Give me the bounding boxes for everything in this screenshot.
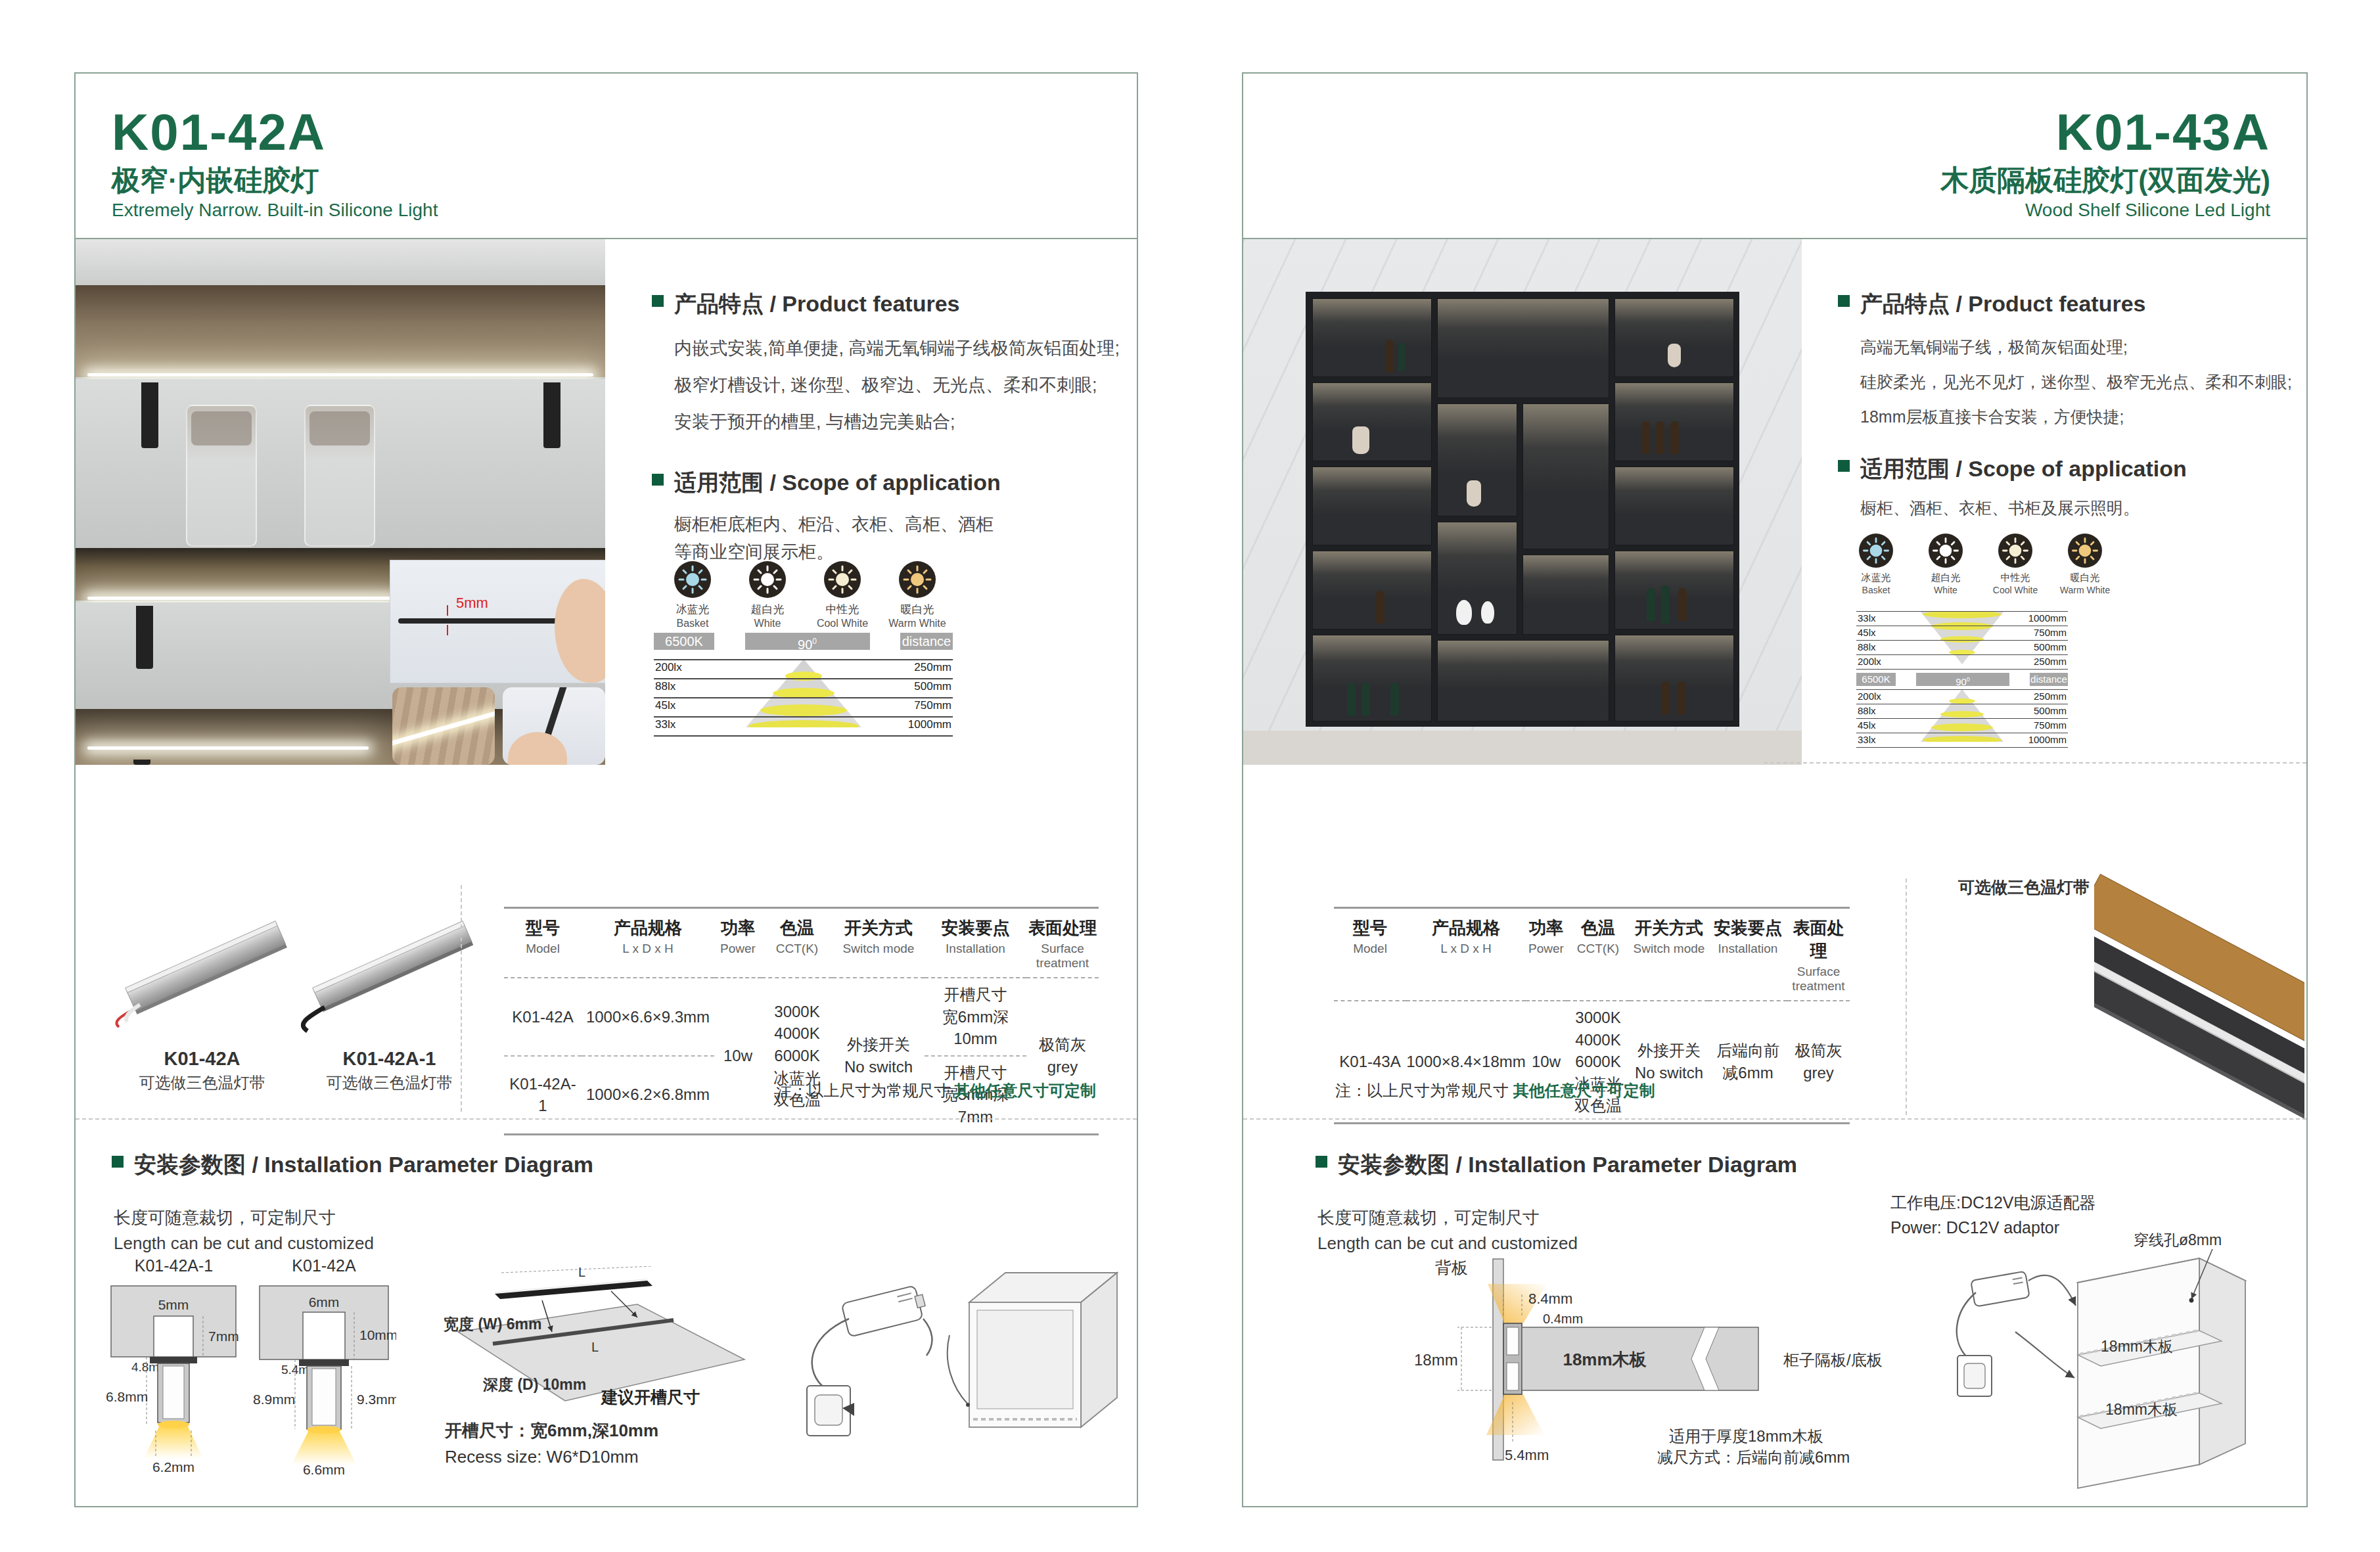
svg-text:18mm: 18mm: [1414, 1351, 1458, 1369]
distance-value: 750mm: [914, 699, 951, 716]
distance-value: 750mm: [2034, 719, 2067, 733]
lux-value: 33lx: [1858, 734, 1876, 747]
lux-value: 88lx: [655, 680, 675, 697]
cabinet-cell: [1312, 551, 1432, 629]
section-divider: [76, 1118, 1137, 1120]
groove-diagram: L L 宽度 (W) 6mm 深度 (D) 10mm 建议开槽尺寸: [444, 1266, 756, 1410]
features-section: 产品特点 / Product features 高端无氧铜端子线，极简灰铝面处理…: [1838, 289, 2298, 532]
photometry-row: 45lx 750mm: [1856, 626, 2068, 640]
features-heading: 产品特点 / Product features: [1838, 289, 2298, 319]
hand-photo: [555, 579, 605, 683]
distance-value: 500mm: [914, 680, 951, 697]
inset-photo-strip-thickness: 5mm: [390, 560, 605, 683]
distance-chip: distance: [2030, 673, 2068, 686]
svg-text:5mm: 5mm: [158, 1297, 189, 1312]
photometry-row: 200lx 250mm: [654, 659, 953, 678]
photometry-row: 200lx 250mm: [1856, 654, 2068, 670]
photometry-row: 45lx 750mm: [1856, 718, 2068, 733]
svg-text:L: L: [591, 1340, 599, 1354]
col-header-cct: 色温CCT(K): [762, 909, 833, 978]
inset-photo-groove-light: [392, 687, 495, 765]
photometry-rows-up: 33lx 1000mm 45lx 750mm 88lx 500mm 200lx …: [1856, 611, 2068, 670]
cross-section-drawing: 背板 18mm木板 柜子隔板/底板 8.4mm 0.4mm 18mm 5.4mm…: [1394, 1250, 1887, 1473]
shelf-cross-section-diagram: 背板 18mm木板 柜子隔板/底板 8.4mm 0.4mm 18mm 5.4mm…: [1394, 1250, 1887, 1476]
col-header-power: 功率Power: [714, 909, 762, 978]
lux-value: 200lx: [1858, 691, 1881, 704]
model-title: K01-42A: [112, 106, 438, 158]
cut-note: 长度可随意裁切，可定制尺寸 Length can be cut and cust…: [1317, 1205, 1578, 1256]
cell-model: K01-42A: [504, 978, 582, 1057]
cut-note-cn: 长度可随意裁切，可定制尺寸: [1317, 1205, 1578, 1231]
photometry-row: 33lx 1000mm: [1856, 733, 2068, 747]
feature-line: 硅胶柔光，见光不见灯，迷你型、极窄无光点、柔和不刺眼;: [1860, 371, 2298, 393]
cell-install: 开槽尺寸宽6mm深10mm: [925, 978, 1026, 1057]
svg-text:8.9mm: 8.9mm: [253, 1392, 295, 1407]
svg-text:6.2mm: 6.2mm: [152, 1459, 195, 1474]
svg-text:6mm: 6mm: [309, 1294, 340, 1310]
col-header-install: 安装要点Installation: [1708, 909, 1787, 1001]
feature-line: 极窄灯槽设计, 迷你型、极窄边、无光点、柔和不刺眼;: [674, 373, 1132, 397]
product-sub-label: 可选做三色温灯带: [299, 1072, 480, 1093]
cabinet-drawing: 18mm木板 18mm木板 穿线孔ø8mm: [1936, 1220, 2295, 1506]
col-header-surface: 表面处理Surface treatment: [1787, 909, 1850, 1001]
col-header-model: 型号Model: [1334, 909, 1406, 1001]
inset-photo-hand-strip: [503, 687, 605, 765]
lux-value: 45lx: [655, 699, 675, 716]
photometry-table-double: 33lx 1000mm 45lx 750mm 88lx 500mm 200lx …: [1856, 611, 2068, 748]
power-note-cn: 工作电压:DC12V电源适配器: [1890, 1191, 2096, 1216]
svg-text:减尺方式：后端向前减6mm: 减尺方式：后端向前减6mm: [1657, 1448, 1850, 1466]
model-title: K01-43A: [1940, 106, 2270, 158]
features-section: 产品特点 / Product features 内嵌式安装,简单便捷, 高端无氧…: [652, 289, 1132, 577]
svg-text:5.4mm: 5.4mm: [1505, 1447, 1549, 1463]
scope-list: 橱柜、酒柜、衣柜、书柜及展示照明。: [1860, 497, 2298, 519]
cross-section-diagram-1: K01-42A-1 5mm 7mm 4.8mm 6.8mm 6.2mm: [103, 1256, 244, 1478]
clear-container: [186, 405, 257, 547]
cct-option-warm-white: 暖白光 Warm White: [887, 561, 948, 629]
product-sub-label: 可选做三色温灯带: [1938, 877, 2109, 898]
svg-text:0.4mm: 0.4mm: [1543, 1312, 1583, 1326]
col-header-surface: 表面处理Surface treatment: [1026, 909, 1099, 978]
product-title-en: Extremely Narrow. Built-in Silicone Ligh…: [112, 200, 438, 221]
cut-note: 长度可随意裁切，可定制尺寸 Length can be cut and cust…: [114, 1205, 374, 1256]
section-divider: [1243, 1118, 2306, 1120]
svg-text:6.6mm: 6.6mm: [303, 1462, 345, 1475]
product-title-cn: 木质隔板硅胶灯(双面发光): [1940, 164, 2270, 196]
sun-icon: [2068, 534, 2102, 568]
vertical-divider: [1906, 879, 1907, 1115]
photometry-row: 45lx 750mm: [654, 697, 953, 716]
svg-text:7mm: 7mm: [208, 1329, 239, 1344]
cell-cct: 3000K4000K6000K 冰蓝光双色温: [1567, 1001, 1630, 1122]
photometry-row: 88lx 500mm: [1856, 640, 2068, 654]
distance-value: 250mm: [2034, 691, 2067, 704]
adapter-drawing: [789, 1273, 936, 1447]
features-list: 内嵌式安装,简单便捷, 高端无氧铜端子线极简灰铝面处理; 极窄灯槽设计, 迷你型…: [674, 336, 1132, 434]
features-heading-text: 产品特点 / Product features: [1860, 289, 2146, 319]
sun-icon: [899, 561, 936, 598]
svg-text:18mm木板: 18mm木板: [2101, 1338, 2173, 1355]
svg-text:背板: 背板: [1435, 1258, 1468, 1277]
product-image-block: K01-42A 可选做三色温灯带: [112, 892, 292, 1093]
scope-line: 橱柜、酒柜、衣柜、书柜及展示照明。: [1860, 497, 2298, 519]
cct-chip: 6500K: [1856, 673, 1896, 686]
square-bullet-icon: [1838, 460, 1850, 472]
clear-container: [304, 405, 375, 547]
col-header-cct: 色温CCT(K): [1567, 909, 1630, 1001]
cabinet-cell: [1437, 640, 1609, 721]
install-heading: 安装参数图 / Installation Parameter Diagram: [1316, 1150, 1797, 1180]
photo-ceiling: [76, 239, 605, 285]
square-bullet-icon: [652, 295, 664, 307]
square-bullet-icon: [1838, 295, 1850, 307]
cct-option-white: 超白光 White: [1917, 534, 1974, 595]
cut-note-en: Length can be cut and customized: [114, 1231, 374, 1256]
dimension-tick: [447, 625, 448, 635]
cell-switch: 外接开关No switch: [833, 978, 925, 1133]
shelf-bracket: [543, 382, 561, 448]
col-header-size: 产品规格L x D x H: [582, 909, 714, 978]
cell-size: 1000×8.4×18mm: [1406, 1001, 1526, 1122]
scope-heading-text: 适用范围 / Scope of application: [1860, 454, 2187, 484]
cabinet-cell: [1312, 298, 1432, 377]
led-strip: [87, 746, 369, 750]
cabinet-cell: [1437, 298, 1609, 398]
cct-label-en: Warm White: [887, 618, 948, 629]
cell-surface: 极简灰grey: [1787, 1001, 1850, 1122]
diagram-label: K01-42A: [252, 1256, 396, 1275]
sun-icon: [1859, 534, 1893, 568]
feature-line: 18mm层板直接卡合安装，方便快捷;: [1860, 406, 2298, 428]
cell-model: K01-43A: [1334, 1001, 1406, 1122]
note-prefix: 注：以上尺寸为常规尺寸: [776, 1082, 954, 1099]
cct-option-ice-blue: 冰蓝光 Basket: [662, 561, 723, 629]
product-title-en: Wood Shelf Silicone Led Light: [1940, 200, 2270, 221]
col-header-size: 产品规格L x D x H: [1406, 909, 1526, 1001]
cct-option-warm-white: 暖白光 Warm White: [2057, 534, 2113, 595]
cell-cct: 3000K4000K6000K 冰蓝光双色温: [762, 978, 833, 1133]
photometry-rows-down: 200lx 250mm 88lx 500mm 45lx 750mm 33lx 1…: [1856, 689, 2068, 748]
product-photo-shelf-lighting: 5mm: [76, 239, 605, 765]
cct-label-cn: 中性光: [1987, 572, 2044, 584]
product-title-cn: 极窄·内嵌硅胶灯: [112, 164, 438, 196]
cct-label-cn: 冰蓝光: [1848, 572, 1904, 584]
vertical-divider: [461, 885, 462, 1112]
features-list: 高端无氧铜端子线，极简灰铝面处理; 硅胶柔光，见光不见灯，迷你型、极窄无光点、柔…: [1860, 336, 2298, 428]
silicone-strip: [398, 618, 557, 624]
col-header-model: 型号Model: [504, 909, 582, 978]
distance-value: 250mm: [2034, 656, 2067, 669]
col-header-install: 安装要点Installation: [925, 909, 1026, 978]
cct-label-cn: 暖白光: [2057, 572, 2113, 584]
shelf-bracket: [141, 382, 158, 448]
cct-options-row: 冰蓝光 Basket 超白光 White 中性光: [1848, 534, 2113, 595]
table-note: 注：以上尺寸为常规尺寸 其他任意尺寸可定制: [1335, 1080, 1655, 1101]
product-photo-display-cabinet: [1243, 239, 1802, 765]
product-name: K01-42A: [112, 1048, 292, 1070]
beam-angle-chip: 900: [745, 633, 870, 650]
cell-size: 1000×6.2×6.8mm: [582, 1057, 714, 1133]
note-highlight: 其他任意尺寸可定制: [1513, 1082, 1655, 1099]
distance-value: 750mm: [2034, 627, 2067, 640]
cct-option-cool-white: 中性光 Cool White: [1987, 534, 2044, 595]
scope-heading: 适用范围 / Scope of application: [1838, 454, 2298, 484]
svg-text:L: L: [578, 1266, 585, 1279]
cabinet-install-diagram: 18mm木板 18mm木板 穿线孔ø8mm: [1936, 1220, 2295, 1509]
svg-text:9.3mm: 9.3mm: [357, 1392, 396, 1407]
feature-line: 安装于预开的槽里, 与槽边完美贴合;: [674, 410, 1132, 434]
cross-section-drawing: 6mm 10mm 5.4mm 8.9mm 9.3mm 6.6mm: [252, 1278, 396, 1475]
svg-text:穿线孔ø8mm: 穿线孔ø8mm: [2134, 1231, 2222, 1248]
cct-option-ice-blue: 冰蓝光 Basket: [1848, 534, 1904, 595]
svg-text:18mm木板: 18mm木板: [1563, 1350, 1647, 1369]
col-header-switch: 开关方式Switch mode: [833, 909, 925, 978]
sun-icon: [674, 561, 711, 598]
svg-text:18mm木板: 18mm木板: [2105, 1401, 2178, 1418]
lux-value: 88lx: [1858, 705, 1876, 718]
beam-angle-chip: 900: [1916, 673, 2009, 686]
photo-bottom-divider: [1764, 762, 2306, 764]
cct-chip: 6500K: [654, 633, 714, 650]
svg-text:适用于厚度18mm木板: 适用于厚度18mm木板: [1669, 1427, 1823, 1445]
note-prefix: 注：以上尺寸为常规尺寸: [1335, 1082, 1513, 1099]
distance-value: 1000mm: [2028, 612, 2067, 626]
product-sub-label: 可选做三色温灯带: [112, 1072, 292, 1093]
lux-value: 45lx: [1858, 719, 1876, 733]
cabinet-cell: [1312, 635, 1432, 721]
cabinet-cell: [1437, 403, 1517, 516]
shelf-profile-image: [2094, 870, 2304, 1189]
install-heading: 安装参数图 / Installation Parameter Diagram: [112, 1150, 593, 1180]
product-image-block: [2094, 870, 2304, 1191]
led-strip: [87, 373, 593, 377]
cabinet-cell: [1614, 551, 1734, 629]
shelf-bracket: [133, 760, 150, 765]
scope-line: 橱柜柜底柜内、柜沿、衣柜、高柜、酒柜: [674, 513, 1132, 536]
aluminum-profile-image: [301, 892, 478, 1043]
cct-label-en: Basket: [662, 618, 723, 629]
photometry-row: 33lx 1000mm: [654, 716, 953, 735]
svg-text:柜子隔板/底板: 柜子隔板/底板: [1783, 1351, 1883, 1369]
distance-value: 500mm: [2034, 705, 2067, 718]
svg-text:宽度 (W) 6mm: 宽度 (W) 6mm: [444, 1315, 542, 1333]
hand-photo: [508, 732, 567, 765]
feature-line: 高端无氧铜端子线，极简灰铝面处理;: [1860, 336, 2298, 358]
product-name: K01-42A-1: [299, 1048, 480, 1070]
lux-value: 33lx: [1858, 612, 1876, 626]
shelf-bracket: [136, 606, 153, 669]
photometry-row: 88lx 500mm: [654, 678, 953, 697]
scope-heading-text: 适用范围 / Scope of application: [674, 468, 1001, 498]
scope-list: 橱柜柜底柜内、柜沿、衣柜、高柜、酒柜 等商业空间展示柜。: [674, 513, 1132, 564]
photo-shelf-top: [76, 285, 605, 377]
photometry-header: 6500K 900 distance: [1856, 673, 2068, 686]
cabinet-cell: [1614, 298, 1734, 377]
cct-label-en: Cool White: [812, 618, 873, 629]
svg-text:6.8mm: 6.8mm: [106, 1389, 148, 1404]
sun-icon: [749, 561, 786, 598]
glowing-strip: [392, 708, 495, 748]
photometry-header: 6500K 900 distance: [654, 633, 953, 650]
cell-model: K01-42A-1: [504, 1057, 582, 1133]
cct-label-en: White: [737, 618, 798, 629]
distance-value: 250mm: [914, 661, 951, 678]
photometry-row: 88lx 500mm: [1856, 704, 2068, 718]
photometry-table: 6500K 900 distance 200lx 250mm: [654, 633, 953, 737]
dimension-tick: [447, 605, 448, 616]
cabinet-cell: [1614, 467, 1734, 545]
features-heading: 产品特点 / Product features: [652, 289, 1132, 319]
cabinet-cell: [1522, 403, 1609, 549]
cct-label-en: Warm White: [2057, 585, 2113, 595]
features-heading-text: 产品特点 / Product features: [674, 289, 960, 319]
cct-label-en: Basket: [1848, 585, 1904, 595]
lux-value: 200lx: [1858, 656, 1881, 669]
square-bullet-icon: [112, 1156, 124, 1168]
square-bullet-icon: [1316, 1156, 1327, 1168]
distance-value: 500mm: [2034, 641, 2067, 654]
recess-note-en: Recess size: W6*D10mm: [445, 1444, 658, 1470]
power-adapter-diagram: [789, 1273, 936, 1449]
col-header-switch: 开关方式Switch mode: [1630, 909, 1708, 1001]
lux-value: 88lx: [1858, 641, 1876, 654]
catalog-page-left: K01-42A 极窄·内嵌硅胶灯 Extremely Narrow. Built…: [74, 72, 1138, 1507]
strip-thickness-dim: 5mm: [456, 595, 488, 612]
cell-install: 后端向前减6mm: [1708, 1001, 1787, 1122]
cell-power: 10w: [1526, 1001, 1567, 1122]
cross-section-diagram-2: K01-42A 6mm 10mm 5.4mm 8.9mm 9.3mm 6.6mm: [252, 1256, 396, 1478]
cct-option-white: 超白光 White: [737, 561, 798, 629]
distance-chip: distance: [900, 633, 953, 650]
install-heading-text: 安装参数图 / Installation Parameter Diagram: [1338, 1150, 1797, 1180]
cabinet-cell: [1312, 382, 1432, 461]
lux-value: 200lx: [655, 661, 682, 678]
photometry-row: 200lx 250mm: [1856, 689, 2068, 704]
cct-label-cn: 暖白光: [887, 602, 948, 617]
distance-value: 1000mm: [908, 718, 951, 735]
lux-value: 45lx: [1858, 627, 1876, 640]
col-header-power: 功率Power: [1526, 909, 1567, 1001]
cabinet-cell: [1614, 382, 1734, 461]
groove-drawing: L L 宽度 (W) 6mm 深度 (D) 10mm 建议开槽尺寸: [444, 1266, 756, 1407]
recess-note-cn: 开槽尺寸：宽6mm,深10mm: [445, 1417, 658, 1444]
photo-floor: [1243, 731, 1802, 765]
display-cabinet: [1306, 292, 1739, 727]
feature-line: 内嵌式安装,简单便捷, 高端无氧铜端子线极简灰铝面处理;: [674, 336, 1132, 360]
distance-value: 1000mm: [2028, 734, 2067, 747]
svg-text:8.4mm: 8.4mm: [1528, 1290, 1572, 1307]
cell-size: 1000×6.6×9.3mm: [582, 978, 714, 1057]
cct-label-en: White: [1917, 585, 1974, 595]
cell-surface: 极简灰grey: [1026, 978, 1099, 1133]
scope-heading: 适用范围 / Scope of application: [652, 468, 1132, 498]
cell-switch: 外接开关No switch: [1630, 1001, 1708, 1122]
sun-icon: [824, 561, 861, 598]
cct-options-row: 冰蓝光 Basket 超白光 White: [662, 561, 948, 629]
cabinet-drawing: [943, 1256, 1127, 1460]
svg-text:深度 (D) 10mm: 深度 (D) 10mm: [482, 1376, 586, 1393]
note-highlight: 其他任意尺寸可定制: [954, 1082, 1096, 1099]
recess-size-note: 开槽尺寸：宽6mm,深10mm Recess size: W6*D10mm: [445, 1417, 658, 1471]
cabinet-cell: [1312, 467, 1432, 545]
cct-label-cn: 超白光: [737, 602, 798, 617]
aluminum-profile-image: [114, 892, 291, 1043]
cabinet-cell: [1522, 555, 1609, 635]
install-heading-text: 安装参数图 / Installation Parameter Diagram: [134, 1150, 593, 1180]
cct-label-cn: 冰蓝光: [662, 602, 723, 617]
page-title-block: K01-42A 极窄·内嵌硅胶灯 Extremely Narrow. Built…: [112, 106, 438, 221]
cabinet-cell: [1614, 635, 1734, 721]
led-strip: [87, 597, 395, 600]
diagram-label: K01-42A-1: [103, 1256, 244, 1275]
cell-power: 10w: [714, 978, 762, 1133]
cabinet-diagram: [943, 1256, 1127, 1463]
lux-value: 33lx: [655, 718, 675, 735]
page-title-block: K01-43A 木质隔板硅胶灯(双面发光) Wood Shelf Silicon…: [1940, 106, 2270, 221]
catalog-page-right: K01-43A 木质隔板硅胶灯(双面发光) Wood Shelf Silicon…: [1242, 72, 2308, 1507]
cct-label-cn: 超白光: [1917, 572, 1974, 584]
cct-label-cn: 中性光: [812, 602, 873, 617]
cross-section-drawing: 5mm 7mm 4.8mm 6.8mm 6.2mm: [103, 1278, 244, 1475]
svg-text:建议开槽尺寸: 建议开槽尺寸: [600, 1388, 700, 1406]
cut-note-cn: 长度可随意裁切，可定制尺寸: [114, 1205, 374, 1231]
cct-option-cool-white: 中性光 Cool White: [812, 561, 873, 629]
svg-text:10mm: 10mm: [359, 1327, 396, 1342]
sun-icon: [1929, 534, 1963, 568]
photometry-row: 33lx 1000mm: [1856, 612, 2068, 626]
cct-label-en: Cool White: [1987, 585, 2044, 595]
table-note: 注：以上尺寸为常规尺寸 其他任意尺寸可定制: [776, 1080, 1096, 1101]
sun-icon: [1998, 534, 2032, 568]
cabinet-cell: [1437, 522, 1517, 635]
product-image-block: K01-42A-1 可选做三色温灯带: [299, 892, 480, 1093]
scope-line: 等商业空间展示柜。: [674, 540, 1132, 564]
square-bullet-icon: [652, 474, 664, 486]
photometry-rows: 200lx 250mm 88lx 500mm 45lx 750mm 33lx 1…: [654, 659, 953, 737]
